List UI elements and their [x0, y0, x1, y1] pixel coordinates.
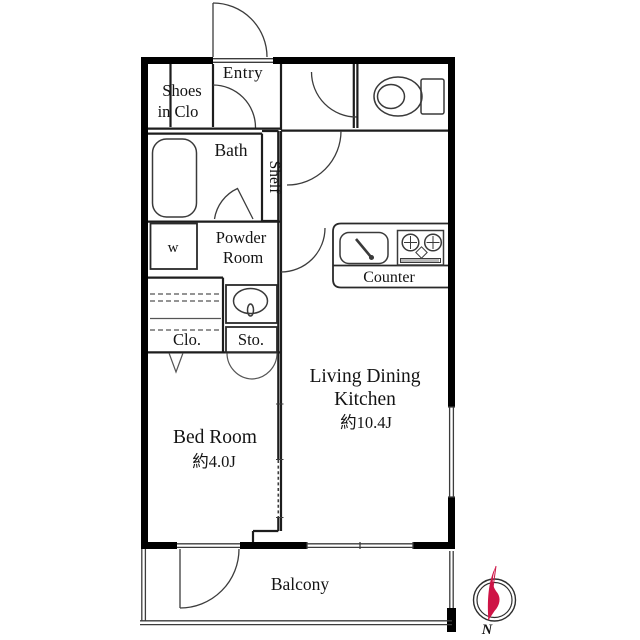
balcony-door-arc: [180, 549, 239, 608]
ldk-label-line1: Living Dining: [309, 366, 420, 387]
closet-folding-door: [169, 353, 183, 372]
closet-label: Clo.: [173, 330, 201, 349]
door-arcs: [180, 3, 357, 608]
entry-door-arc: [213, 3, 267, 57]
shoes-closet-label-line1: Shoes: [162, 81, 201, 100]
shoe-closet-door-arc: [213, 85, 256, 128]
toilet-icon: [374, 77, 444, 116]
kitchen-sink-icon: [340, 233, 388, 264]
bathtub-icon: [153, 139, 197, 217]
powder-room-door-arc: [281, 228, 325, 272]
balcony-label: Balcony: [271, 574, 330, 594]
powder-room-label-line1: Powder: [216, 228, 267, 247]
bath-folding-door: [215, 189, 254, 220]
ldk-label-line2: Kitchen: [334, 389, 396, 410]
floor-plan: Entry Shoes in Clo Bath Shelf Powder Roo…: [0, 0, 640, 640]
sliding-door: [276, 404, 284, 518]
shelf-label: Shelf: [266, 161, 283, 195]
ldk-size-label: 約10.4J: [340, 413, 392, 432]
ldk-door-arc: [287, 131, 341, 185]
storage-door-right-arc: [252, 353, 277, 379]
entry-label: Entry: [223, 63, 263, 82]
washer-label: w: [168, 240, 179, 256]
wash-basin-icon: [234, 289, 268, 317]
bedroom-size-label: 約4.0J: [192, 452, 236, 471]
storage-door-left-arc: [227, 353, 252, 379]
stove-icon: [398, 231, 444, 266]
counter-label: Counter: [363, 269, 415, 286]
powder-room-label-line2: Room: [223, 248, 264, 267]
shoes-closet-label-line2: in Clo: [158, 102, 199, 121]
storage-label: Sto.: [238, 330, 264, 349]
bath-label: Bath: [214, 140, 247, 160]
bedroom-label: Bed Room: [173, 427, 257, 448]
north-label: N: [481, 622, 493, 638]
toilet-door-arc: [312, 72, 357, 117]
compass-icon: N: [474, 566, 516, 638]
floor-plan-page: Entry Shoes in Clo Bath Shelf Powder Roo…: [0, 0, 640, 640]
